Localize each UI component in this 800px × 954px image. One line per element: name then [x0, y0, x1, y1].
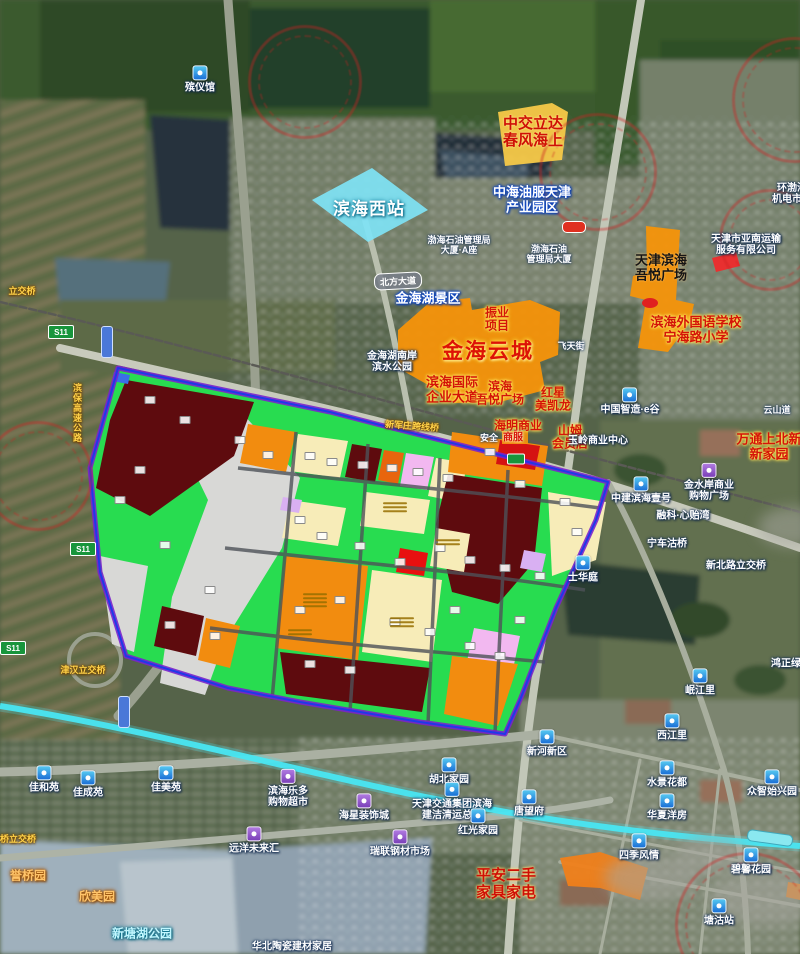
right-edge-orange-chip [786, 882, 800, 900]
parcel-cream-1 [290, 434, 348, 478]
zhongjiao-lida-yellow [498, 103, 568, 166]
shangfu-orange-chip [502, 431, 528, 444]
terrain-and-zoning-canvas [0, 0, 800, 954]
parcel-lavender-2 [520, 550, 546, 572]
parcel-red-2 [396, 548, 428, 576]
school-red-dot [642, 298, 658, 308]
satellite-planning-map[interactable]: S11S11S11北方大道 殡仪馆中交立达春风海上滨海西站中海油服天津产业园区渤… [0, 0, 800, 954]
